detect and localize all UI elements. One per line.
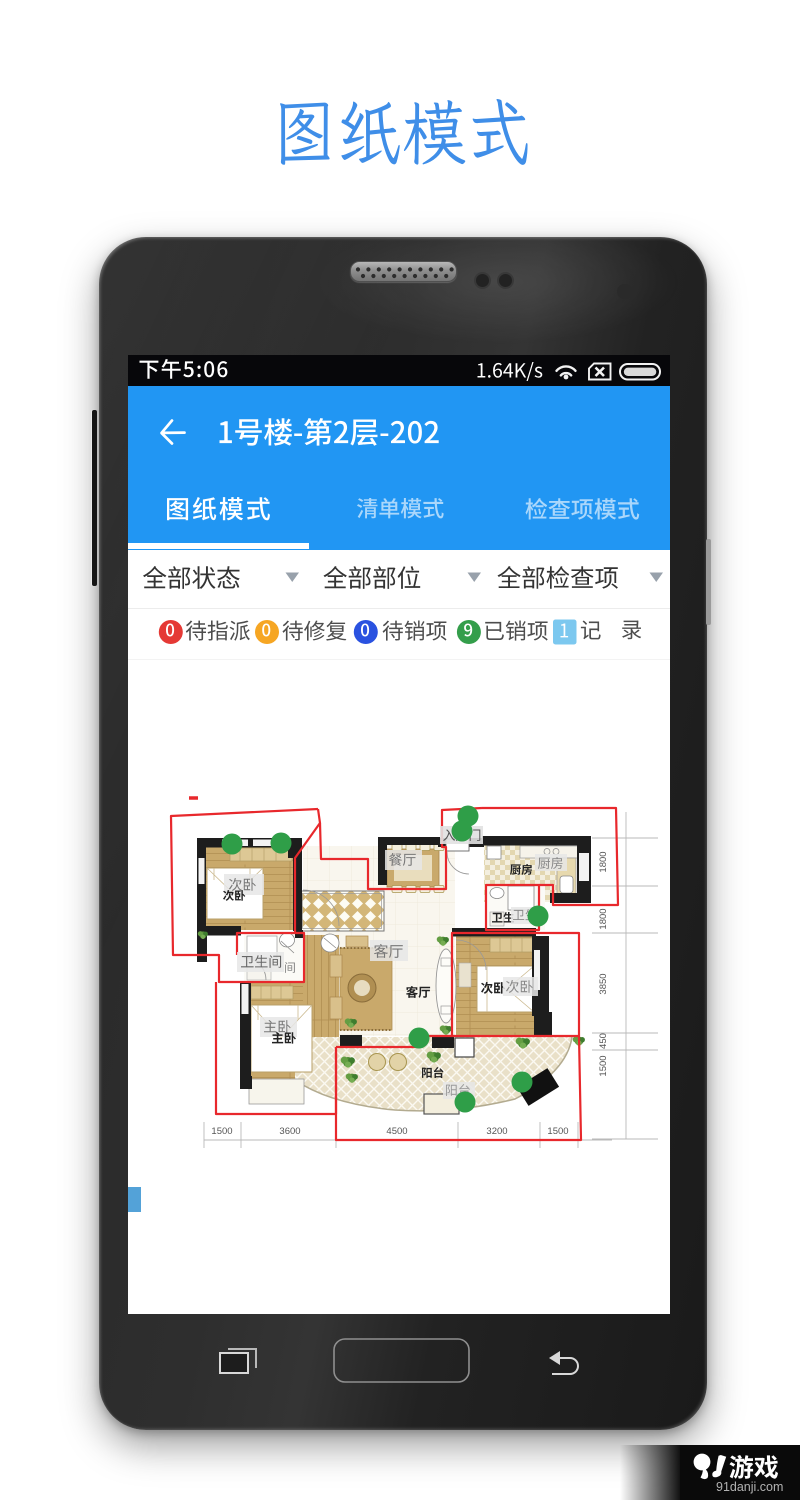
svg-text:1800: 1800	[598, 851, 609, 872]
svg-text:450: 450	[598, 1033, 609, 1049]
svg-text:4500: 4500	[386, 1126, 407, 1137]
svg-text:3850: 3850	[598, 973, 609, 994]
svg-text:3600: 3600	[279, 1126, 300, 1137]
svg-text:1500: 1500	[547, 1126, 568, 1137]
svg-text:1800: 1800	[598, 908, 609, 929]
svg-text:3200: 3200	[486, 1126, 507, 1137]
svg-text:1500: 1500	[211, 1126, 232, 1137]
svg-text:1500: 1500	[598, 1055, 609, 1076]
